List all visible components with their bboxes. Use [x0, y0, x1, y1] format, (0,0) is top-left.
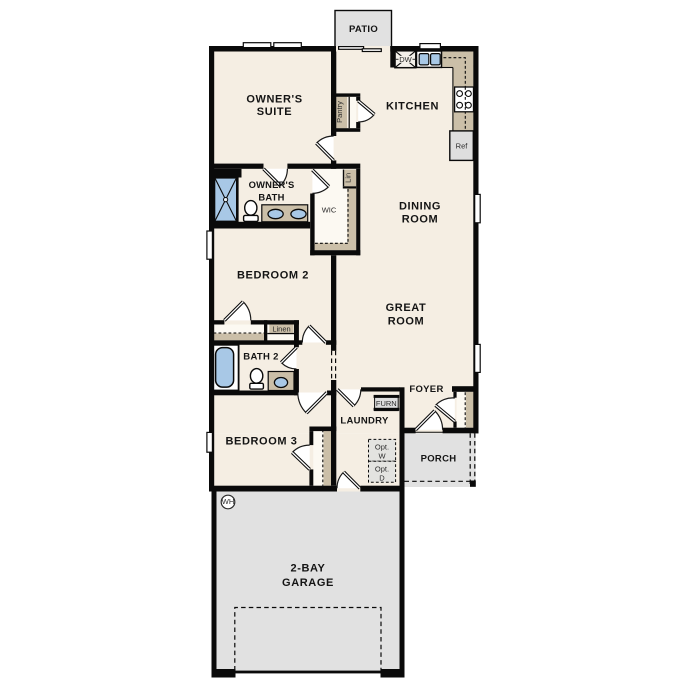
svg-text:PORCH: PORCH: [421, 454, 457, 465]
svg-text:WH: WH: [222, 497, 235, 506]
svg-text:D: D: [379, 473, 385, 482]
svg-text:W: W: [378, 452, 386, 461]
svg-text:GARAGE: GARAGE: [282, 577, 334, 589]
svg-text:FURN: FURN: [376, 399, 397, 408]
svg-text:Pantry: Pantry: [335, 101, 344, 123]
svg-text:FOYER: FOYER: [409, 384, 443, 395]
svg-text:ROOM: ROOM: [402, 214, 439, 226]
svg-text:BEDROOM 2: BEDROOM 2: [237, 270, 309, 282]
svg-text:BATH 2: BATH 2: [243, 352, 278, 363]
svg-text:DW: DW: [399, 55, 412, 64]
svg-text:LAUNDRY: LAUNDRY: [340, 416, 389, 427]
svg-text:GREAT: GREAT: [386, 302, 427, 314]
svg-text:ROOM: ROOM: [388, 316, 425, 328]
svg-text:OWNER'S: OWNER'S: [246, 94, 302, 106]
svg-text:Ref: Ref: [456, 142, 469, 151]
svg-text:Lin: Lin: [343, 173, 352, 183]
svg-text:SUITE: SUITE: [257, 106, 292, 118]
svg-text:KITCHEN: KITCHEN: [386, 101, 439, 113]
svg-text:DINING: DINING: [399, 201, 441, 213]
svg-text:OWNER'S: OWNER'S: [249, 179, 295, 190]
svg-text:2-BAY: 2-BAY: [291, 563, 326, 575]
svg-text:Opt.: Opt.: [375, 464, 389, 473]
svg-text:Linen: Linen: [272, 325, 290, 334]
svg-text:BEDROOM 3: BEDROOM 3: [225, 436, 297, 448]
svg-text:WIC: WIC: [322, 206, 337, 215]
svg-text:Opt.: Opt.: [375, 443, 389, 452]
svg-text:BATH: BATH: [258, 191, 284, 202]
svg-text:PATIO: PATIO: [349, 24, 378, 35]
